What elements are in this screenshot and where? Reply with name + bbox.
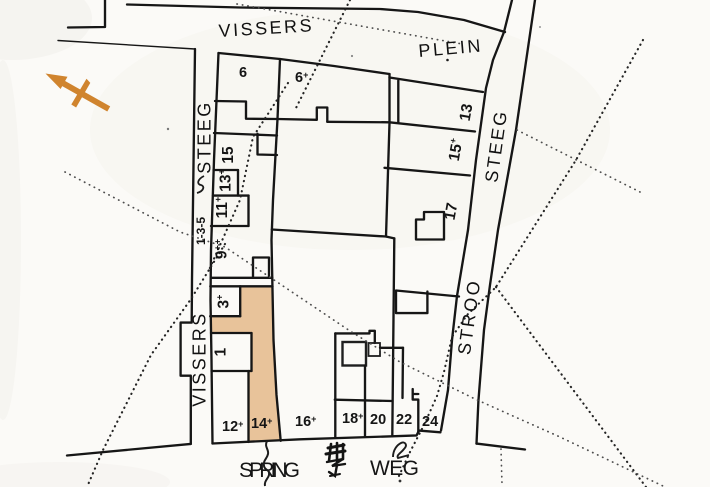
svg-text:STEEG: STEEG [194, 100, 214, 174]
svg-text:13: 13 [457, 102, 477, 122]
svg-text:15: 15 [220, 146, 237, 164]
svg-text:6: 6 [239, 65, 247, 81]
svg-text:SPRING: SPRING [239, 459, 301, 482]
svg-text:22: 22 [396, 412, 412, 428]
svg-text:1-3-5: 1-3-5 [194, 217, 208, 245]
svg-text:VISSERS: VISSERS [189, 311, 209, 407]
svg-text:1: 1 [213, 347, 230, 356]
svg-text:WEG: WEG [370, 457, 420, 480]
svg-text:17: 17 [442, 201, 462, 221]
svg-text:24: 24 [422, 414, 438, 430]
svg-text:20: 20 [370, 412, 386, 428]
